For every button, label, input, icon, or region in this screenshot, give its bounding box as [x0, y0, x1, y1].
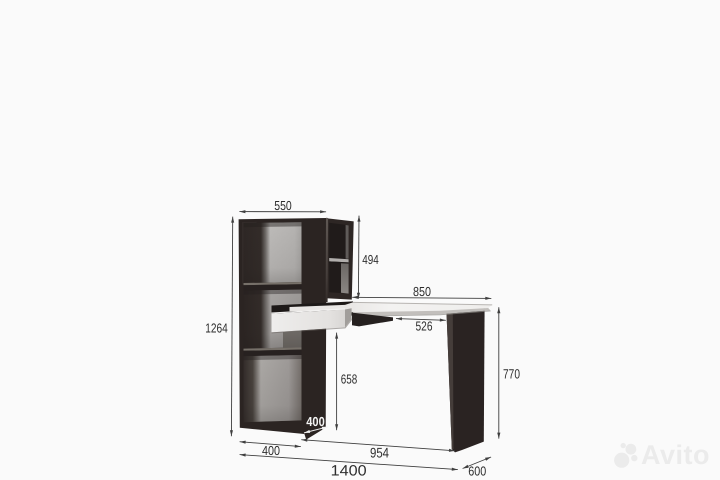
- svg-text:Avito: Avito: [641, 440, 710, 470]
- svg-text:1264: 1264: [205, 321, 228, 336]
- svg-text:658: 658: [341, 372, 358, 387]
- svg-text:494: 494: [362, 252, 379, 267]
- svg-text:550: 550: [274, 198, 292, 213]
- svg-text:850: 850: [413, 284, 431, 299]
- svg-text:600: 600: [468, 464, 486, 479]
- svg-text:1400: 1400: [331, 462, 367, 479]
- svg-text:770: 770: [503, 367, 520, 382]
- svg-text:954: 954: [370, 444, 389, 460]
- svg-text:400: 400: [306, 414, 325, 429]
- svg-text:526: 526: [416, 319, 433, 334]
- svg-text:400: 400: [262, 443, 280, 458]
